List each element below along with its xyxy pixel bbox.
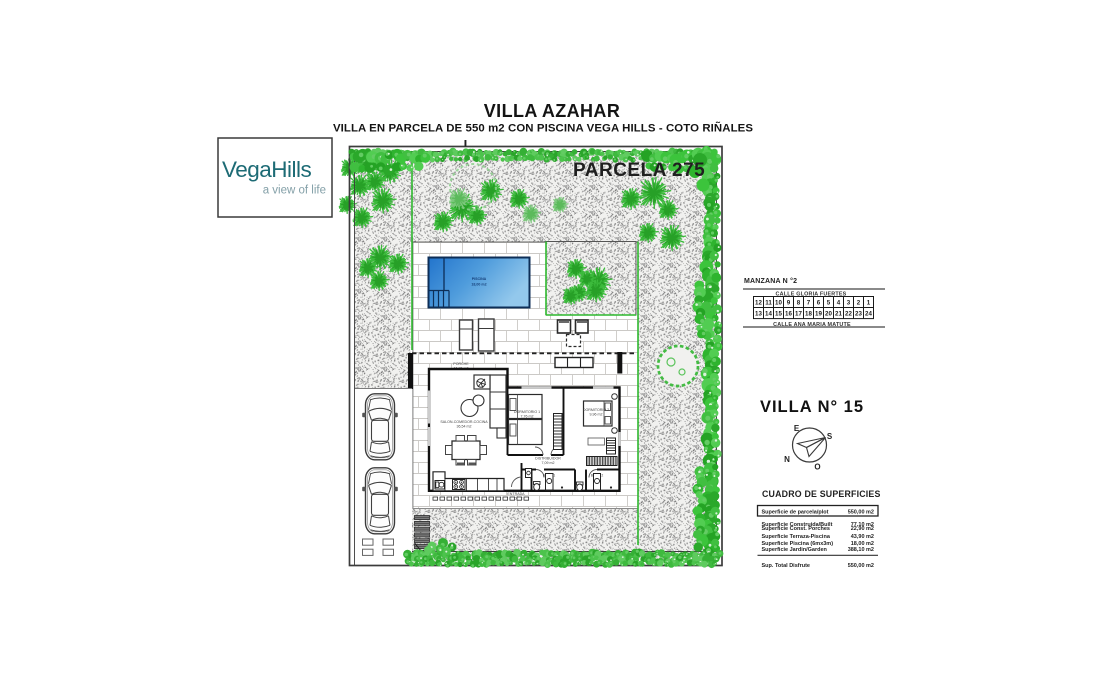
svg-text:Superficie Jardin/Garden: Superficie Jardin/Garden [762, 547, 828, 553]
svg-text:DORMITORIO 1: DORMITORIO 1 [514, 410, 540, 414]
svg-text:VILLA AZAHAR: VILLA AZAHAR [484, 101, 620, 121]
svg-text:PISCINA: PISCINA [472, 277, 487, 281]
svg-text:MANZANA N °2: MANZANA N °2 [744, 277, 797, 285]
svg-text:7: 7 [807, 300, 811, 307]
svg-text:9: 9 [787, 300, 791, 307]
svg-text:10: 10 [775, 300, 782, 307]
svg-text:DORMITORIO 2: DORMITORIO 2 [583, 408, 609, 412]
svg-text:2: 2 [857, 300, 861, 307]
svg-text:E: E [794, 424, 800, 433]
svg-text:VILLA N° 15: VILLA N° 15 [760, 398, 864, 416]
svg-text:4: 4 [837, 300, 841, 307]
svg-text:18: 18 [805, 311, 812, 318]
svg-text:18,00 m2: 18,00 m2 [471, 283, 486, 287]
svg-text:21: 21 [835, 311, 842, 318]
svg-text:17: 17 [795, 311, 802, 318]
svg-text:14: 14 [765, 311, 772, 318]
svg-text:N: N [784, 455, 790, 464]
svg-text:15: 15 [775, 311, 782, 318]
svg-text:9,96 m2: 9,96 m2 [590, 413, 603, 417]
svg-text:5: 5 [827, 300, 831, 307]
svg-text:SALON-COMEDOR-COCINA: SALON-COMEDOR-COCINA [440, 420, 488, 424]
svg-text:Superficie Terraza-Piscina: Superficie Terraza-Piscina [762, 534, 831, 540]
svg-text:20: 20 [825, 311, 832, 318]
svg-text:S: S [827, 432, 833, 441]
svg-text:7,09 m2: 7,09 m2 [542, 461, 555, 465]
svg-text:22: 22 [845, 311, 852, 318]
svg-text:6: 6 [817, 300, 821, 307]
svg-text:ENTRADA: ENTRADA [507, 492, 525, 496]
svg-text:Superficie de parcela/plot: Superficie de parcela/plot [762, 509, 829, 515]
svg-text:3: 3 [847, 300, 851, 307]
svg-text:Superficie Const. Porches: Superficie Const. Porches [762, 526, 830, 532]
svg-text:a view of life: a view of life [263, 185, 326, 197]
svg-text:8: 8 [797, 300, 801, 307]
svg-text:36,54 m2: 36,54 m2 [457, 425, 472, 429]
svg-text:PARCELA 275: PARCELA 275 [573, 160, 705, 181]
svg-text:24: 24 [865, 311, 872, 318]
svg-text:DISTRIBUIDOR: DISTRIBUIDOR [535, 457, 561, 461]
svg-text:7,76 m2: 7,76 m2 [521, 415, 534, 419]
svg-text:23: 23 [855, 311, 862, 318]
svg-text:VILLA EN PARCELA DE 550 m2 CON: VILLA EN PARCELA DE 550 m2 CON PISCINA V… [333, 122, 753, 135]
svg-text:1: 1 [867, 300, 871, 307]
svg-text:12: 12 [755, 300, 762, 307]
svg-text:16: 16 [785, 311, 792, 318]
svg-text:O: O [814, 463, 820, 472]
svg-text:550,00 m2: 550,00 m2 [848, 563, 874, 569]
svg-text:11: 11 [765, 300, 772, 307]
svg-text:13: 13 [755, 311, 762, 318]
svg-text:19: 19 [815, 311, 822, 318]
svg-text:550,00 m2: 550,00 m2 [848, 509, 874, 515]
svg-text:VegaHills: VegaHills [222, 157, 312, 182]
svg-text:22,90 m2: 22,90 m2 [851, 526, 874, 532]
svg-text:Sup. Total Disfrute: Sup. Total Disfrute [762, 563, 810, 569]
svg-text:43,90 m2: 43,90 m2 [851, 534, 874, 540]
svg-text:PORCHE: PORCHE [453, 362, 469, 366]
svg-text:388,10 m2: 388,10 m2 [848, 547, 874, 553]
svg-text:CUADRO DE SUPERFICIES: CUADRO DE SUPERFICIES [762, 489, 881, 499]
